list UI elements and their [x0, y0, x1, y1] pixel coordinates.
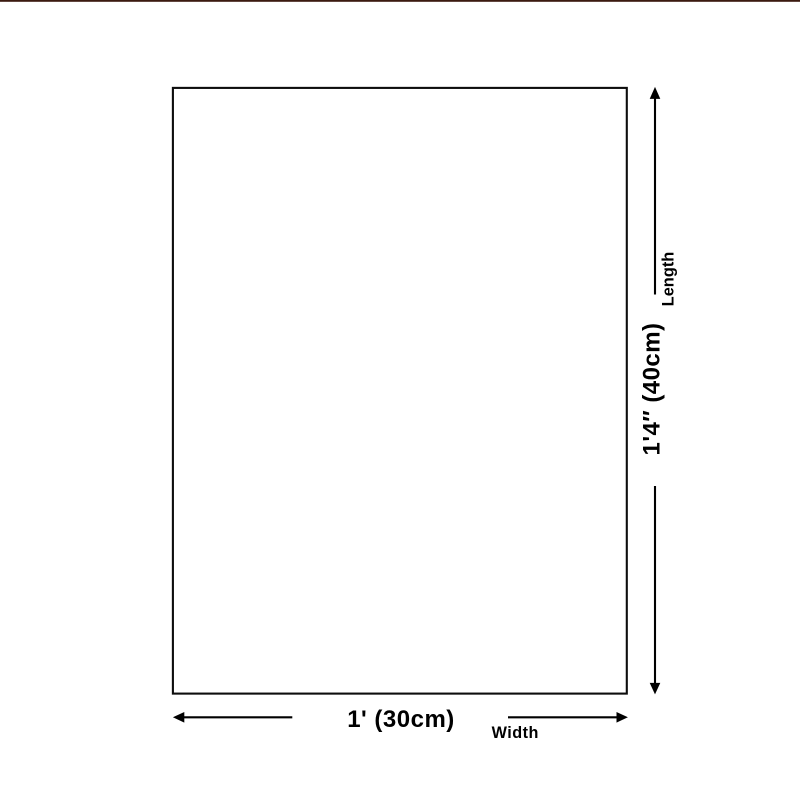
svg-text:Width: Width: [492, 724, 539, 742]
svg-text:1'4″ (40cm): 1'4″ (40cm): [638, 323, 665, 456]
svg-text:Length: Length: [659, 252, 677, 307]
svg-text:1' (30cm): 1' (30cm): [347, 706, 455, 733]
